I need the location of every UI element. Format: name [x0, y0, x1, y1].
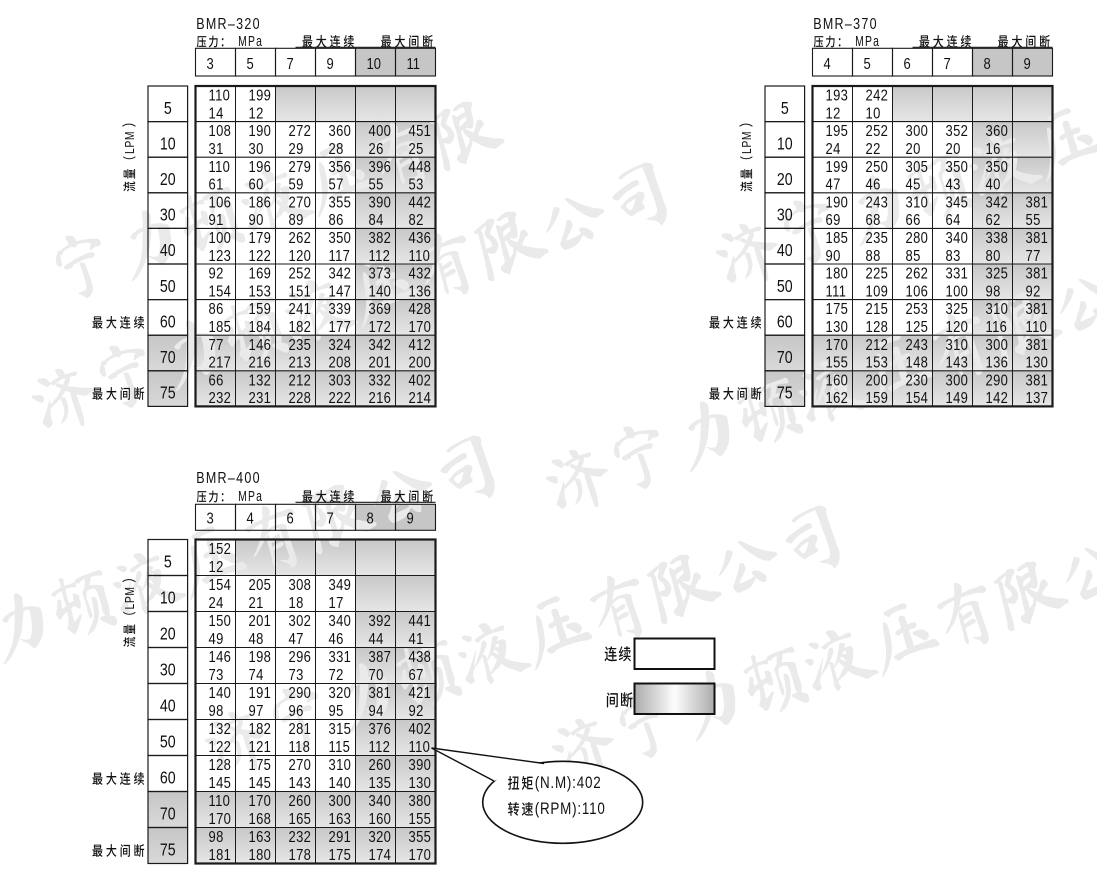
svg-text:49: 49	[209, 631, 224, 649]
svg-text:402: 402	[409, 721, 432, 739]
svg-text:205: 205	[249, 577, 272, 595]
svg-text:428: 428	[409, 301, 432, 319]
svg-text:67: 67	[409, 667, 424, 685]
svg-text:303: 303	[329, 372, 352, 390]
svg-text:128: 128	[866, 319, 889, 337]
svg-text:55: 55	[369, 176, 384, 194]
svg-text:3: 3	[207, 56, 214, 74]
svg-text:181: 181	[209, 847, 232, 865]
svg-text:120: 120	[289, 248, 312, 266]
svg-text:86: 86	[209, 301, 224, 319]
svg-text:143: 143	[289, 775, 312, 793]
svg-text:177: 177	[329, 319, 352, 337]
svg-text:350: 350	[986, 159, 1009, 177]
svg-text:100: 100	[209, 230, 232, 248]
svg-text:201: 201	[249, 613, 272, 631]
svg-text:61: 61	[209, 176, 224, 194]
svg-text:442: 442	[409, 194, 432, 212]
svg-text:75: 75	[777, 383, 793, 403]
svg-text:59: 59	[289, 176, 304, 194]
svg-text:8: 8	[984, 56, 991, 74]
svg-text:60: 60	[160, 312, 176, 332]
svg-text:308: 308	[289, 577, 312, 595]
svg-text:199: 199	[249, 87, 272, 105]
svg-text:53: 53	[409, 176, 424, 194]
svg-text:41: 41	[409, 631, 424, 649]
svg-text:242: 242	[866, 87, 889, 105]
svg-text:331: 331	[946, 265, 969, 283]
svg-text:175: 175	[249, 757, 272, 775]
svg-text:6: 6	[287, 510, 294, 528]
svg-text:170: 170	[409, 319, 432, 337]
svg-text:10: 10	[367, 56, 381, 74]
svg-text:191: 191	[249, 685, 272, 703]
svg-text:381: 381	[1026, 230, 1049, 248]
svg-text:20: 20	[906, 141, 921, 159]
svg-text:5: 5	[164, 98, 172, 118]
svg-text:45: 45	[906, 176, 921, 194]
svg-text:201: 201	[369, 354, 392, 372]
svg-text:75: 75	[160, 840, 176, 860]
svg-text:108: 108	[209, 123, 232, 141]
svg-text:193: 193	[826, 87, 849, 105]
svg-text:3: 3	[207, 510, 214, 528]
svg-text:44: 44	[369, 631, 384, 649]
svg-text:21: 21	[249, 595, 264, 613]
svg-text:92: 92	[209, 265, 224, 283]
svg-text:168: 168	[249, 811, 272, 829]
svg-text:216: 216	[249, 354, 272, 372]
svg-text:262: 262	[906, 265, 929, 283]
svg-text:241: 241	[289, 301, 312, 319]
svg-text:151: 151	[289, 283, 312, 301]
svg-text:200: 200	[409, 354, 432, 372]
svg-text:387: 387	[369, 649, 392, 667]
svg-text:360: 360	[329, 123, 352, 141]
svg-text:212: 212	[289, 372, 312, 390]
svg-text:170: 170	[826, 337, 849, 355]
svg-text:195: 195	[826, 123, 849, 141]
svg-text:146: 146	[249, 337, 272, 355]
svg-text:73: 73	[289, 667, 304, 685]
svg-text:137: 137	[1026, 390, 1049, 408]
svg-text:150: 150	[209, 613, 232, 631]
svg-text:340: 340	[329, 613, 352, 631]
svg-text:26: 26	[369, 141, 384, 159]
svg-text:123: 123	[209, 248, 232, 266]
svg-text:296: 296	[289, 649, 312, 667]
svg-text:332: 332	[369, 372, 392, 390]
svg-text:132: 132	[209, 721, 232, 739]
svg-text:190: 190	[826, 194, 849, 212]
svg-text:110: 110	[209, 793, 231, 811]
svg-text:LPM: LPM	[123, 131, 137, 154]
svg-text:25: 25	[409, 141, 424, 159]
svg-text:43: 43	[946, 176, 961, 194]
svg-text:154: 154	[906, 390, 929, 408]
svg-text:4: 4	[824, 56, 831, 74]
svg-text:369: 369	[369, 301, 392, 319]
svg-text:7: 7	[944, 56, 951, 74]
svg-text:175: 175	[329, 847, 352, 865]
svg-text:10: 10	[777, 134, 793, 154]
svg-text:412: 412	[409, 337, 432, 355]
svg-text:4: 4	[247, 510, 254, 528]
svg-text:20: 20	[160, 624, 176, 644]
svg-text:198: 198	[249, 649, 272, 667]
svg-text:381: 381	[369, 685, 392, 703]
svg-text:356: 356	[329, 159, 352, 177]
svg-text:60: 60	[777, 312, 793, 332]
svg-text:(RPM):110: (RPM):110	[535, 800, 606, 819]
svg-text:84: 84	[369, 212, 384, 230]
svg-text:190: 190	[249, 123, 272, 141]
svg-text:89: 89	[289, 212, 304, 230]
svg-text:230: 230	[906, 372, 929, 390]
svg-text:291: 291	[329, 829, 352, 847]
svg-text:382: 382	[369, 230, 392, 248]
svg-text:117: 117	[329, 248, 351, 266]
svg-text:MPa: MPa	[855, 32, 880, 49]
svg-text:12: 12	[249, 105, 264, 123]
svg-text:355: 355	[329, 194, 352, 212]
svg-text:235: 235	[866, 230, 889, 248]
svg-text:68: 68	[866, 212, 881, 230]
svg-text:70: 70	[160, 348, 176, 368]
svg-text:LPM: LPM	[740, 131, 754, 154]
svg-text:16: 16	[986, 141, 1001, 159]
svg-text:90: 90	[249, 212, 264, 230]
svg-text:24: 24	[209, 595, 224, 613]
svg-text:270: 270	[289, 194, 312, 212]
svg-text:381: 381	[1026, 194, 1049, 212]
svg-text:213: 213	[289, 354, 312, 372]
svg-text:57: 57	[329, 176, 344, 194]
svg-text:170: 170	[209, 811, 232, 829]
svg-text:5: 5	[864, 56, 871, 74]
svg-text:47: 47	[826, 176, 841, 194]
svg-text:5: 5	[781, 98, 789, 118]
svg-text:280: 280	[906, 230, 929, 248]
svg-text:392: 392	[369, 613, 392, 631]
svg-text:18: 18	[289, 595, 304, 613]
svg-text:98: 98	[209, 829, 224, 847]
svg-text:212: 212	[866, 337, 889, 355]
svg-text:9: 9	[1024, 56, 1031, 74]
svg-text:436: 436	[409, 230, 432, 248]
svg-text:40: 40	[160, 241, 176, 261]
svg-text:381: 381	[1026, 301, 1049, 319]
svg-text:182: 182	[289, 319, 312, 337]
svg-text:262: 262	[289, 230, 312, 248]
svg-text:153: 153	[249, 283, 272, 301]
svg-text:LPM: LPM	[123, 586, 137, 609]
svg-text:136: 136	[986, 354, 1009, 372]
svg-text:390: 390	[369, 194, 392, 212]
svg-text:270: 270	[289, 757, 312, 775]
svg-text:60: 60	[160, 768, 176, 788]
svg-text:215: 215	[866, 301, 889, 319]
svg-text:175: 175	[826, 301, 849, 319]
svg-text:106: 106	[906, 283, 929, 301]
svg-text:29: 29	[289, 141, 304, 159]
svg-text:342: 342	[986, 194, 1009, 212]
svg-text:451: 451	[409, 123, 432, 141]
svg-text:20: 20	[777, 170, 793, 190]
svg-text:153: 153	[866, 354, 889, 372]
svg-text:272: 272	[289, 123, 312, 141]
svg-text:100: 100	[946, 283, 969, 301]
svg-text:109: 109	[866, 283, 889, 301]
svg-text:432: 432	[409, 265, 432, 283]
svg-text:421: 421	[409, 685, 432, 703]
svg-text:400: 400	[369, 123, 392, 141]
svg-text:MPa: MPa	[238, 487, 263, 504]
svg-text:381: 381	[1026, 337, 1049, 355]
svg-text:360: 360	[986, 123, 1009, 141]
svg-text:160: 160	[826, 372, 849, 390]
svg-text:350: 350	[329, 230, 352, 248]
svg-text:30: 30	[160, 660, 176, 680]
svg-text:214: 214	[409, 390, 432, 408]
svg-text:66: 66	[906, 212, 921, 230]
svg-text:208: 208	[329, 354, 352, 372]
svg-text:402: 402	[409, 372, 432, 390]
svg-text:130: 130	[409, 775, 432, 793]
svg-text:350: 350	[946, 159, 969, 177]
svg-text:125: 125	[906, 319, 929, 337]
svg-text:46: 46	[866, 176, 881, 194]
svg-text:70: 70	[160, 804, 176, 824]
svg-text:5: 5	[247, 56, 254, 74]
svg-text:174: 174	[369, 847, 392, 865]
svg-text:40: 40	[986, 176, 1001, 194]
svg-text:160: 160	[369, 811, 392, 829]
svg-text:128: 128	[209, 757, 232, 775]
svg-text:88: 88	[866, 248, 881, 266]
svg-text:172: 172	[369, 319, 392, 337]
svg-text:315: 315	[329, 721, 352, 739]
svg-text:231: 231	[249, 390, 272, 408]
svg-text:310: 310	[986, 301, 1009, 319]
svg-text:154: 154	[209, 283, 232, 301]
svg-text:281: 281	[289, 721, 312, 739]
svg-text:48: 48	[249, 631, 264, 649]
svg-text:10: 10	[866, 105, 881, 123]
svg-text:179: 179	[249, 230, 272, 248]
svg-text:145: 145	[209, 775, 232, 793]
svg-text:5: 5	[164, 552, 172, 572]
svg-text:320: 320	[369, 829, 392, 847]
svg-text:147: 147	[329, 283, 352, 301]
svg-text:92: 92	[1026, 283, 1041, 301]
svg-text:140: 140	[209, 685, 232, 703]
svg-text:324: 324	[329, 337, 352, 355]
svg-text:352: 352	[946, 123, 969, 141]
svg-text:120: 120	[946, 319, 969, 337]
svg-text:331: 331	[329, 649, 352, 667]
svg-text:184: 184	[249, 319, 272, 337]
svg-text:7: 7	[327, 510, 334, 528]
svg-text:300: 300	[946, 372, 969, 390]
svg-text:376: 376	[369, 721, 392, 739]
svg-text:111: 111	[826, 283, 847, 301]
svg-text:355: 355	[409, 829, 432, 847]
svg-text:170: 170	[249, 793, 272, 811]
svg-text:310: 310	[906, 194, 929, 212]
svg-text:130: 130	[826, 319, 849, 337]
svg-text:10: 10	[160, 588, 176, 608]
svg-text:250: 250	[866, 159, 889, 177]
svg-text:110: 110	[209, 87, 231, 105]
svg-text:162: 162	[826, 390, 849, 408]
svg-text:300: 300	[906, 123, 929, 141]
svg-text:143: 143	[946, 354, 969, 372]
svg-text:74: 74	[249, 667, 264, 685]
svg-text:325: 325	[986, 265, 1009, 283]
svg-text:10: 10	[160, 134, 176, 154]
svg-text:300: 300	[329, 793, 352, 811]
svg-text:7: 7	[287, 56, 294, 74]
svg-text:302: 302	[289, 613, 312, 631]
svg-text:BMR–400: BMR–400	[196, 469, 261, 486]
svg-text:222: 222	[329, 390, 352, 408]
svg-text:118: 118	[289, 739, 311, 757]
svg-text:178: 178	[289, 847, 312, 865]
svg-text:290: 290	[289, 685, 312, 703]
svg-text:216: 216	[369, 390, 392, 408]
svg-text:252: 252	[866, 123, 889, 141]
svg-text:98: 98	[986, 283, 1001, 301]
svg-text:31: 31	[209, 141, 224, 159]
svg-text:24: 24	[826, 141, 841, 159]
svg-text:163: 163	[329, 811, 352, 829]
svg-text:12: 12	[826, 105, 841, 123]
svg-text:132: 132	[249, 372, 272, 390]
svg-text:62: 62	[986, 212, 1001, 230]
svg-text:339: 339	[329, 301, 352, 319]
svg-text:70: 70	[369, 667, 384, 685]
svg-text:196: 196	[249, 159, 272, 177]
svg-text:72: 72	[329, 667, 344, 685]
svg-text:438: 438	[409, 649, 432, 667]
svg-text:260: 260	[369, 757, 392, 775]
svg-text:20: 20	[160, 170, 176, 190]
svg-text:200: 200	[866, 372, 889, 390]
svg-text:82: 82	[409, 212, 424, 230]
svg-text:182: 182	[249, 721, 272, 739]
svg-text:55: 55	[1026, 212, 1041, 230]
svg-text:163: 163	[249, 829, 272, 847]
svg-text:243: 243	[866, 194, 889, 212]
svg-text:228: 228	[289, 390, 312, 408]
svg-text:95: 95	[329, 703, 344, 721]
svg-text:112: 112	[369, 739, 391, 757]
svg-text:342: 342	[329, 265, 352, 283]
svg-text:80: 80	[986, 248, 1001, 266]
svg-text:20: 20	[946, 141, 961, 159]
svg-text:30: 30	[777, 205, 793, 225]
svg-text:232: 232	[289, 829, 312, 847]
svg-text:22: 22	[866, 141, 881, 159]
svg-text:30: 30	[249, 141, 264, 159]
svg-text:8: 8	[367, 510, 374, 528]
svg-text:186: 186	[249, 194, 272, 212]
svg-text:83: 83	[946, 248, 961, 266]
svg-text:73: 73	[209, 667, 224, 685]
svg-text:86: 86	[329, 212, 344, 230]
svg-text:225: 225	[866, 265, 889, 283]
svg-text:159: 159	[249, 301, 272, 319]
svg-text:165: 165	[289, 811, 312, 829]
svg-text:11: 11	[407, 56, 420, 74]
svg-text:77: 77	[209, 337, 224, 355]
svg-text:310: 310	[329, 757, 352, 775]
svg-text:252: 252	[289, 265, 312, 283]
svg-text:260: 260	[289, 793, 312, 811]
svg-text:349: 349	[329, 577, 352, 595]
svg-text:112: 112	[369, 248, 391, 266]
svg-text:130: 130	[1026, 354, 1049, 372]
svg-text:199: 199	[826, 159, 849, 177]
svg-text:66: 66	[209, 372, 224, 390]
svg-text:169: 169	[249, 265, 272, 283]
svg-text:345: 345	[946, 194, 969, 212]
svg-text:60: 60	[249, 176, 264, 194]
svg-text:342: 342	[369, 337, 392, 355]
svg-text:122: 122	[249, 248, 272, 266]
svg-text:94: 94	[369, 703, 384, 721]
svg-text:340: 340	[946, 230, 969, 248]
svg-text:279: 279	[289, 159, 312, 177]
svg-text:154: 154	[209, 577, 232, 595]
svg-text:50: 50	[160, 732, 176, 752]
svg-text:170: 170	[409, 847, 432, 865]
svg-text:9: 9	[407, 510, 414, 528]
svg-text:146: 146	[209, 649, 232, 667]
svg-text:98: 98	[209, 703, 224, 721]
svg-text:116: 116	[986, 319, 1008, 337]
svg-text:145: 145	[249, 775, 272, 793]
svg-text:(N.M):402: (N.M):402	[535, 774, 602, 793]
svg-text:217: 217	[209, 354, 232, 372]
svg-text:97: 97	[249, 703, 264, 721]
svg-text:320: 320	[329, 685, 352, 703]
svg-text:390: 390	[409, 757, 432, 775]
svg-text:14: 14	[209, 105, 224, 123]
svg-text:300: 300	[986, 337, 1009, 355]
svg-text:70: 70	[777, 348, 793, 368]
svg-text:325: 325	[946, 301, 969, 319]
svg-text:338: 338	[986, 230, 1009, 248]
svg-text:17: 17	[329, 595, 344, 613]
svg-text:448: 448	[409, 159, 432, 177]
svg-text:159: 159	[866, 390, 889, 408]
svg-text:50: 50	[160, 276, 176, 296]
svg-text:9: 9	[327, 56, 334, 74]
svg-text:185: 185	[826, 230, 849, 248]
svg-text:85: 85	[906, 248, 921, 266]
svg-text:47: 47	[289, 631, 304, 649]
svg-text:180: 180	[249, 847, 272, 865]
svg-text:149: 149	[946, 390, 969, 408]
svg-text:185: 185	[209, 319, 232, 337]
svg-text:110: 110	[409, 248, 431, 266]
svg-text:64: 64	[946, 212, 961, 230]
svg-text:155: 155	[826, 354, 849, 372]
svg-text:110: 110	[1026, 319, 1048, 337]
svg-text:142: 142	[986, 390, 1009, 408]
